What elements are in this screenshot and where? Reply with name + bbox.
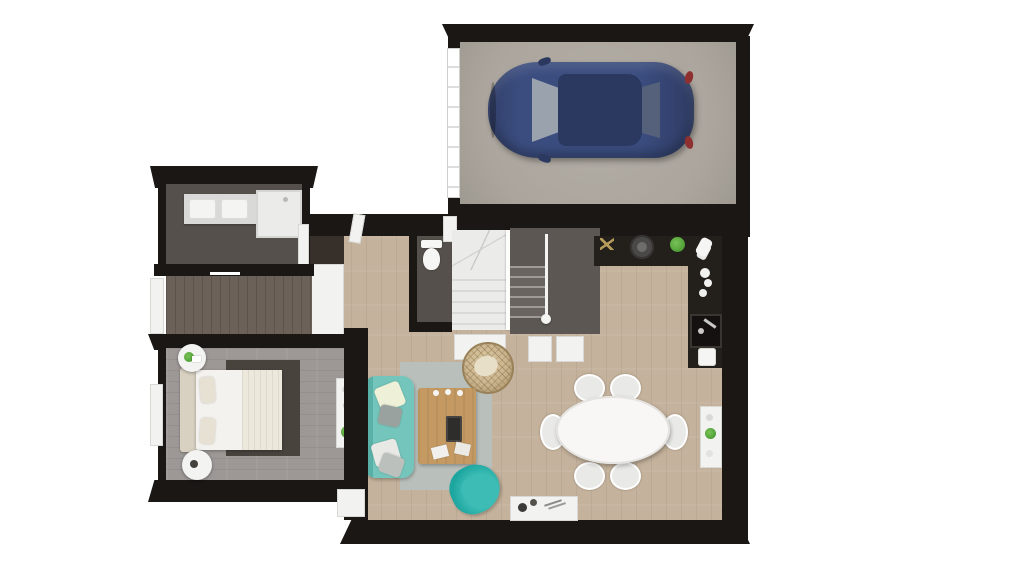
bed-duvet xyxy=(242,370,282,450)
toilet-bowl xyxy=(423,248,440,270)
kitchen-plant xyxy=(670,237,685,252)
stairs-upper-winders xyxy=(452,230,510,270)
kitchen-jar-1 xyxy=(700,268,710,278)
car-roof xyxy=(558,74,642,146)
wc-wall-bottom xyxy=(409,322,452,332)
understair-closet-mid xyxy=(528,336,552,362)
house-wall-right xyxy=(722,214,748,544)
corridor-door-handle xyxy=(210,272,240,275)
dining-chair-bottom-right xyxy=(610,462,641,490)
stair-landing-steps xyxy=(510,266,546,318)
floor-plan-canvas xyxy=(0,0,1024,576)
understair-closet-right xyxy=(556,336,584,362)
coffee-cup-1 xyxy=(433,390,439,396)
landing-railing xyxy=(545,234,548,318)
stairs-lower-flight xyxy=(452,270,510,330)
coffee-cup-3 xyxy=(457,390,463,396)
landing-newel-post xyxy=(541,314,551,324)
sideboard-plant xyxy=(705,428,716,439)
bed-pillow-bottom xyxy=(199,418,216,445)
dining-chair-bottom-left xyxy=(574,462,605,490)
coffee-table-tablet xyxy=(446,416,462,442)
wc-wall-left xyxy=(409,236,417,330)
garage-door xyxy=(447,48,460,198)
car-front-grille xyxy=(490,82,496,138)
sideboard-bowl xyxy=(706,450,713,457)
bed-pillow-top xyxy=(199,377,216,404)
corridor-floor xyxy=(166,276,312,336)
vanity-sink-left xyxy=(189,199,216,219)
kitchen-jar-3 xyxy=(699,289,707,297)
kitchen-jar-2 xyxy=(704,279,712,287)
garage-wall-top xyxy=(442,24,754,44)
toilet-tank xyxy=(421,240,442,248)
car-taillight-top xyxy=(683,70,694,85)
console-vase-small xyxy=(530,499,537,506)
bedroom-wall-bottom xyxy=(148,480,362,502)
kitchen-cutting-board xyxy=(698,348,716,366)
vanity-sink-right xyxy=(221,199,248,219)
car-taillight-bottom xyxy=(683,135,694,150)
house-wall-bottom xyxy=(340,518,750,544)
sofa-pillow-gray xyxy=(377,404,403,428)
nightstand-bottom-item xyxy=(190,460,198,468)
car xyxy=(488,62,694,158)
sideboard-vase xyxy=(706,414,713,421)
shower xyxy=(256,190,302,238)
car-rear-window xyxy=(642,78,660,142)
console-vase-dark xyxy=(518,503,527,512)
entry-closet-top xyxy=(306,236,344,264)
kitchen-faucet-base xyxy=(698,328,704,334)
garage-wall-right xyxy=(734,36,750,216)
nightstand-top-book xyxy=(192,356,201,362)
kitchen-utensils xyxy=(600,238,614,250)
bedroom-window xyxy=(150,384,163,446)
coffee-cup-2 xyxy=(445,389,451,395)
shower-drain xyxy=(283,197,288,202)
dining-table xyxy=(556,396,670,464)
corridor-door-left xyxy=(150,278,164,334)
bedroom-door xyxy=(337,489,365,517)
kitchen-pan-inner xyxy=(637,242,647,252)
